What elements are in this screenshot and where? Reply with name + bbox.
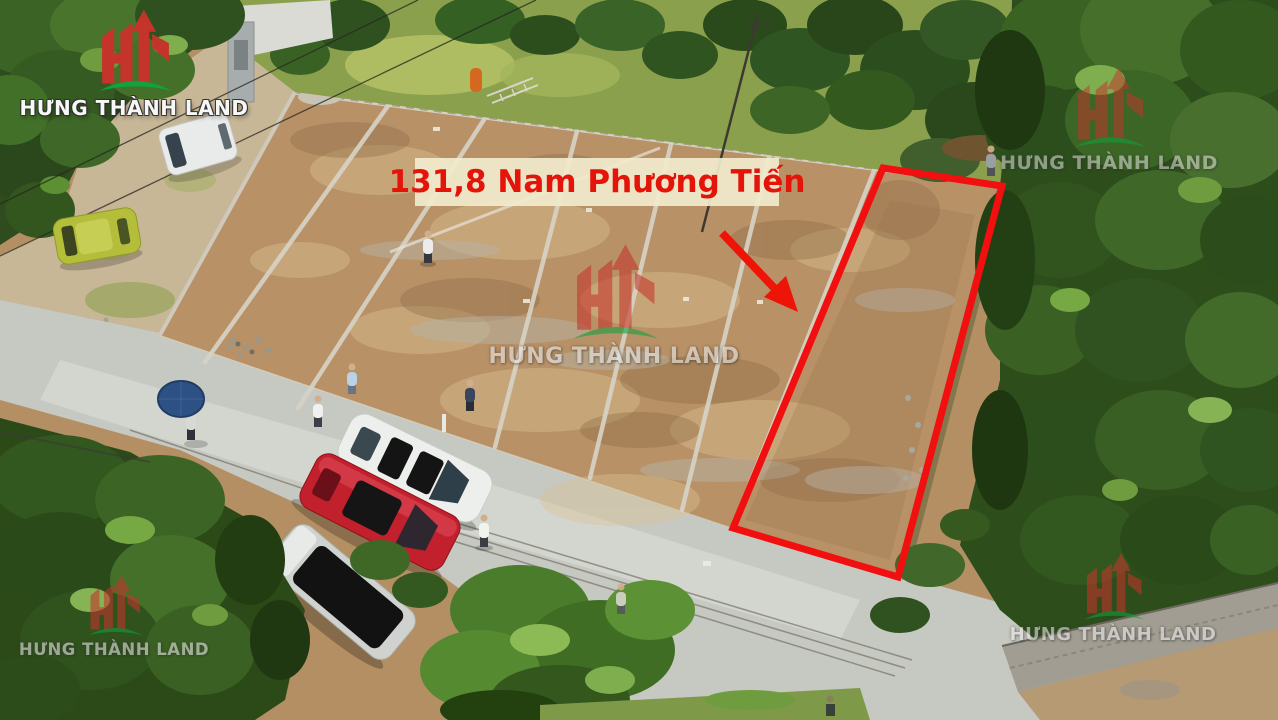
ht-monogram-icon: [570, 240, 658, 342]
brand-name: HƯNG THÀNH LAND: [488, 344, 739, 369]
brand-watermark-bottom-left: HƯNG THÀNH LAND: [30, 572, 198, 659]
ht-monogram-icon: [86, 572, 142, 638]
brand-name: HƯNG THÀNH LAND: [1010, 624, 1217, 645]
ht-monogram-icon: [1082, 550, 1144, 622]
plot-size-label: 131,8 Nam Phương Tiến: [415, 158, 779, 206]
brand-logo-top-left: HƯNG THÀNH LAND: [34, 6, 234, 120]
ht-monogram-icon: [96, 6, 172, 94]
ht-monogram-icon: [1072, 64, 1146, 150]
brand-name: HƯNG THÀNH LAND: [1000, 152, 1218, 174]
brand-watermark-bottom-right: HƯNG THÀNH LAND: [1024, 550, 1202, 645]
white-post: [442, 414, 446, 432]
aerial-photo: 131,8 Nam Phương Tiến HƯNG THÀNH LAND HƯ…: [0, 0, 1278, 720]
brand-watermark-center: HƯNG THÀNH LAND: [505, 240, 723, 369]
orange-cone: [470, 68, 482, 92]
brand-watermark-top-right: HƯNG THÀNH LAND: [1016, 64, 1202, 174]
brand-name: HƯNG THÀNH LAND: [20, 96, 249, 120]
brand-name: HƯNG THÀNH LAND: [19, 640, 209, 659]
